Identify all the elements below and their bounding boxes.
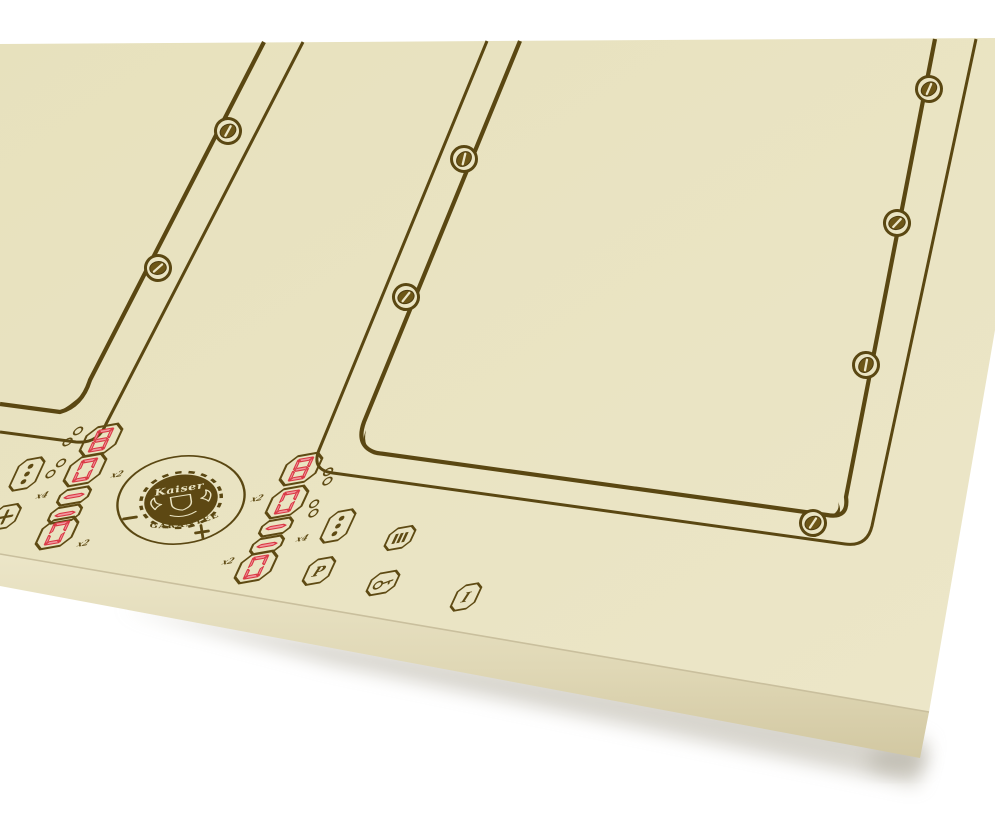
cooktop-product-photo: x2 x4 x2 (0, 0, 995, 815)
